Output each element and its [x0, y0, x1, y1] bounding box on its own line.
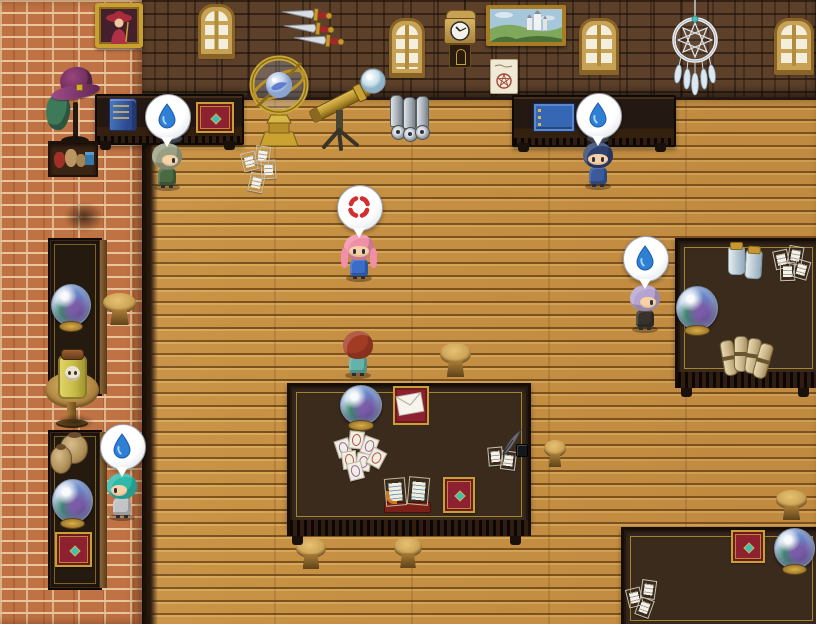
sweat-drop-balloon	[145, 94, 189, 150]
anger-balloon	[337, 185, 381, 241]
sweat-drop-balloon	[100, 424, 144, 480]
character-auburn-haired-visitor[interactable]	[341, 329, 375, 379]
emote-layer	[0, 0, 816, 624]
sweat-drop-balloon	[576, 93, 620, 149]
game-viewport[interactable]	[0, 0, 816, 624]
sweat-drop-balloon	[623, 236, 667, 292]
